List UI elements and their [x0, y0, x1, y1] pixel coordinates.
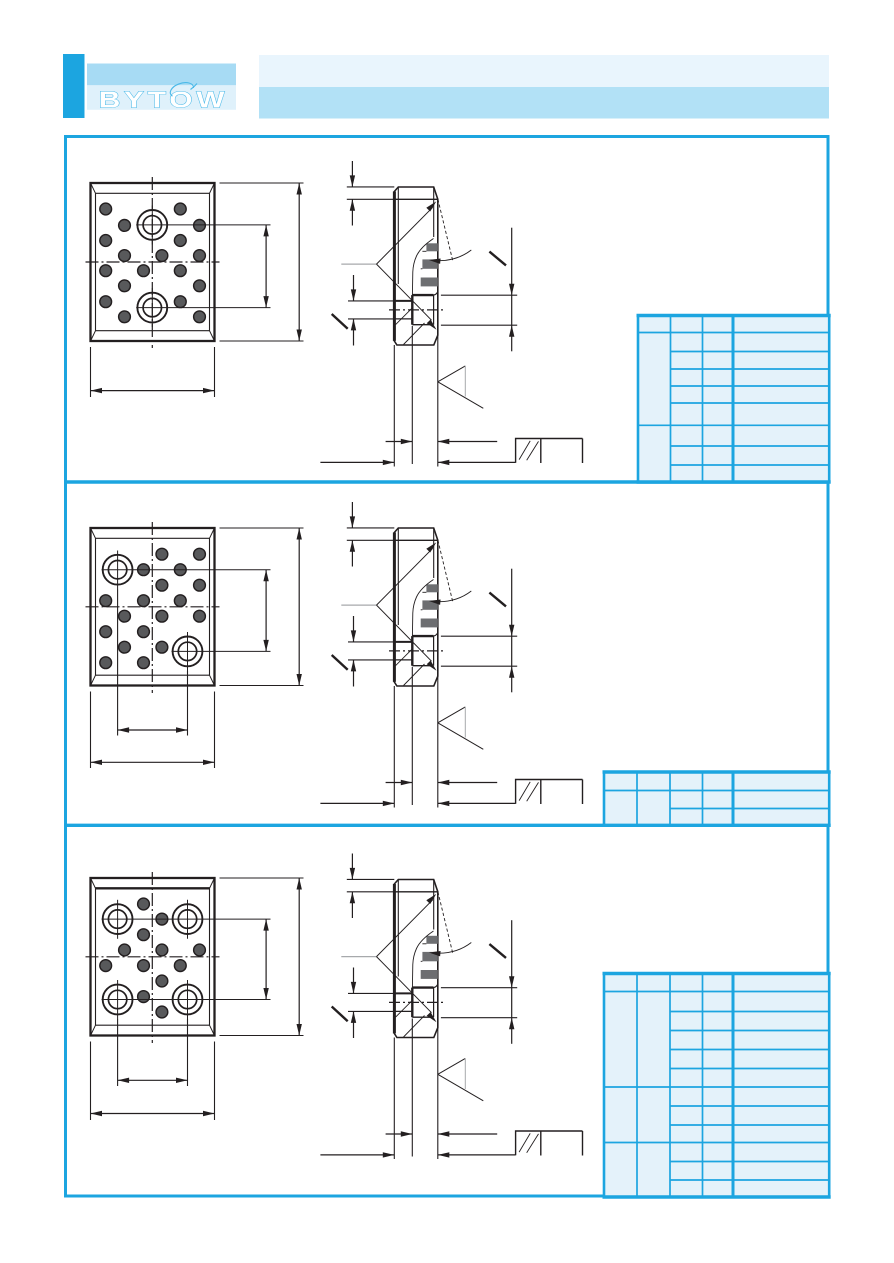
svg-text:BYTOW: BYTOW: [99, 86, 229, 112]
